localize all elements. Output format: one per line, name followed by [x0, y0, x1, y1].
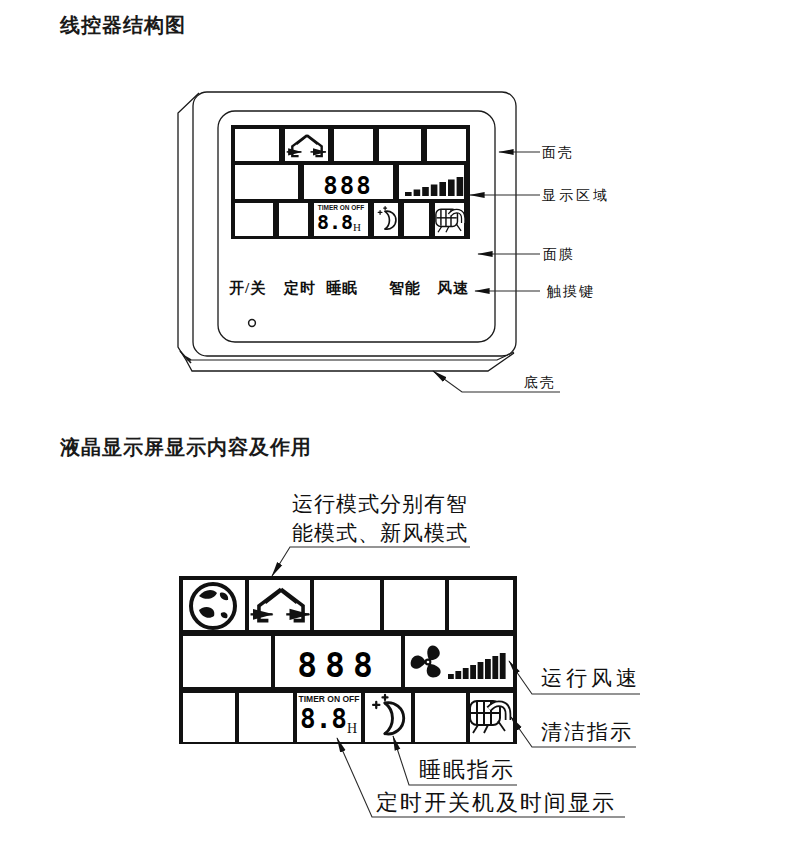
callout-clean-indicator: 清洁指示 — [541, 718, 633, 746]
callout-touch-keys: 触摸键 — [547, 283, 595, 301]
section1-title: 线控器结构图 — [60, 12, 186, 39]
callout-fan-speed: 运行风速 — [541, 664, 641, 692]
touch-key-sleep: 睡眠 — [326, 279, 358, 298]
touch-key-timer: 定时 — [284, 279, 316, 298]
callout-display-area: 显示区域 — [542, 187, 610, 205]
corner-bevel-hatch — [180, 351, 191, 363]
timer-caption-2: TIMER ON OFF — [295, 695, 363, 704]
annotation-mode-line1: 运行模式分别有智 — [284, 490, 476, 518]
timer-unit-2: H — [347, 721, 357, 737]
callout-front-shell: 面壳 — [542, 144, 574, 162]
callout-bottom-shell: 底壳 — [524, 374, 556, 392]
touch-key-smart: 智能 — [389, 279, 421, 298]
touch-key-fan: 风速 — [437, 279, 469, 298]
timer-digits-2: 8.8 — [300, 706, 347, 732]
controller-structure-drawing — [178, 92, 560, 392]
callout-timer-display: 定时开关机及时间显示 — [376, 788, 616, 818]
manual-page: 线控器结构图 888 TIMER ON OFF 8.8 H 开/关 定时 睡眠 … — [0, 0, 790, 868]
callout-sleep-indicator: 睡眠指示 — [419, 755, 515, 785]
touch-key-power: 开/关 — [229, 279, 266, 298]
annotation-mode-line2: 能模式、新风模式 — [284, 519, 476, 547]
mode-digits-2: 888 — [277, 649, 401, 682]
callout-membrane: 面膜 — [543, 246, 575, 264]
timer-unit-1: H — [353, 221, 361, 233]
section2-title: 液晶显示屏显示内容及作用 — [60, 434, 312, 461]
timer-digits-1: 8.8 — [317, 212, 353, 232]
mode-digits-1: 888 — [308, 174, 388, 198]
